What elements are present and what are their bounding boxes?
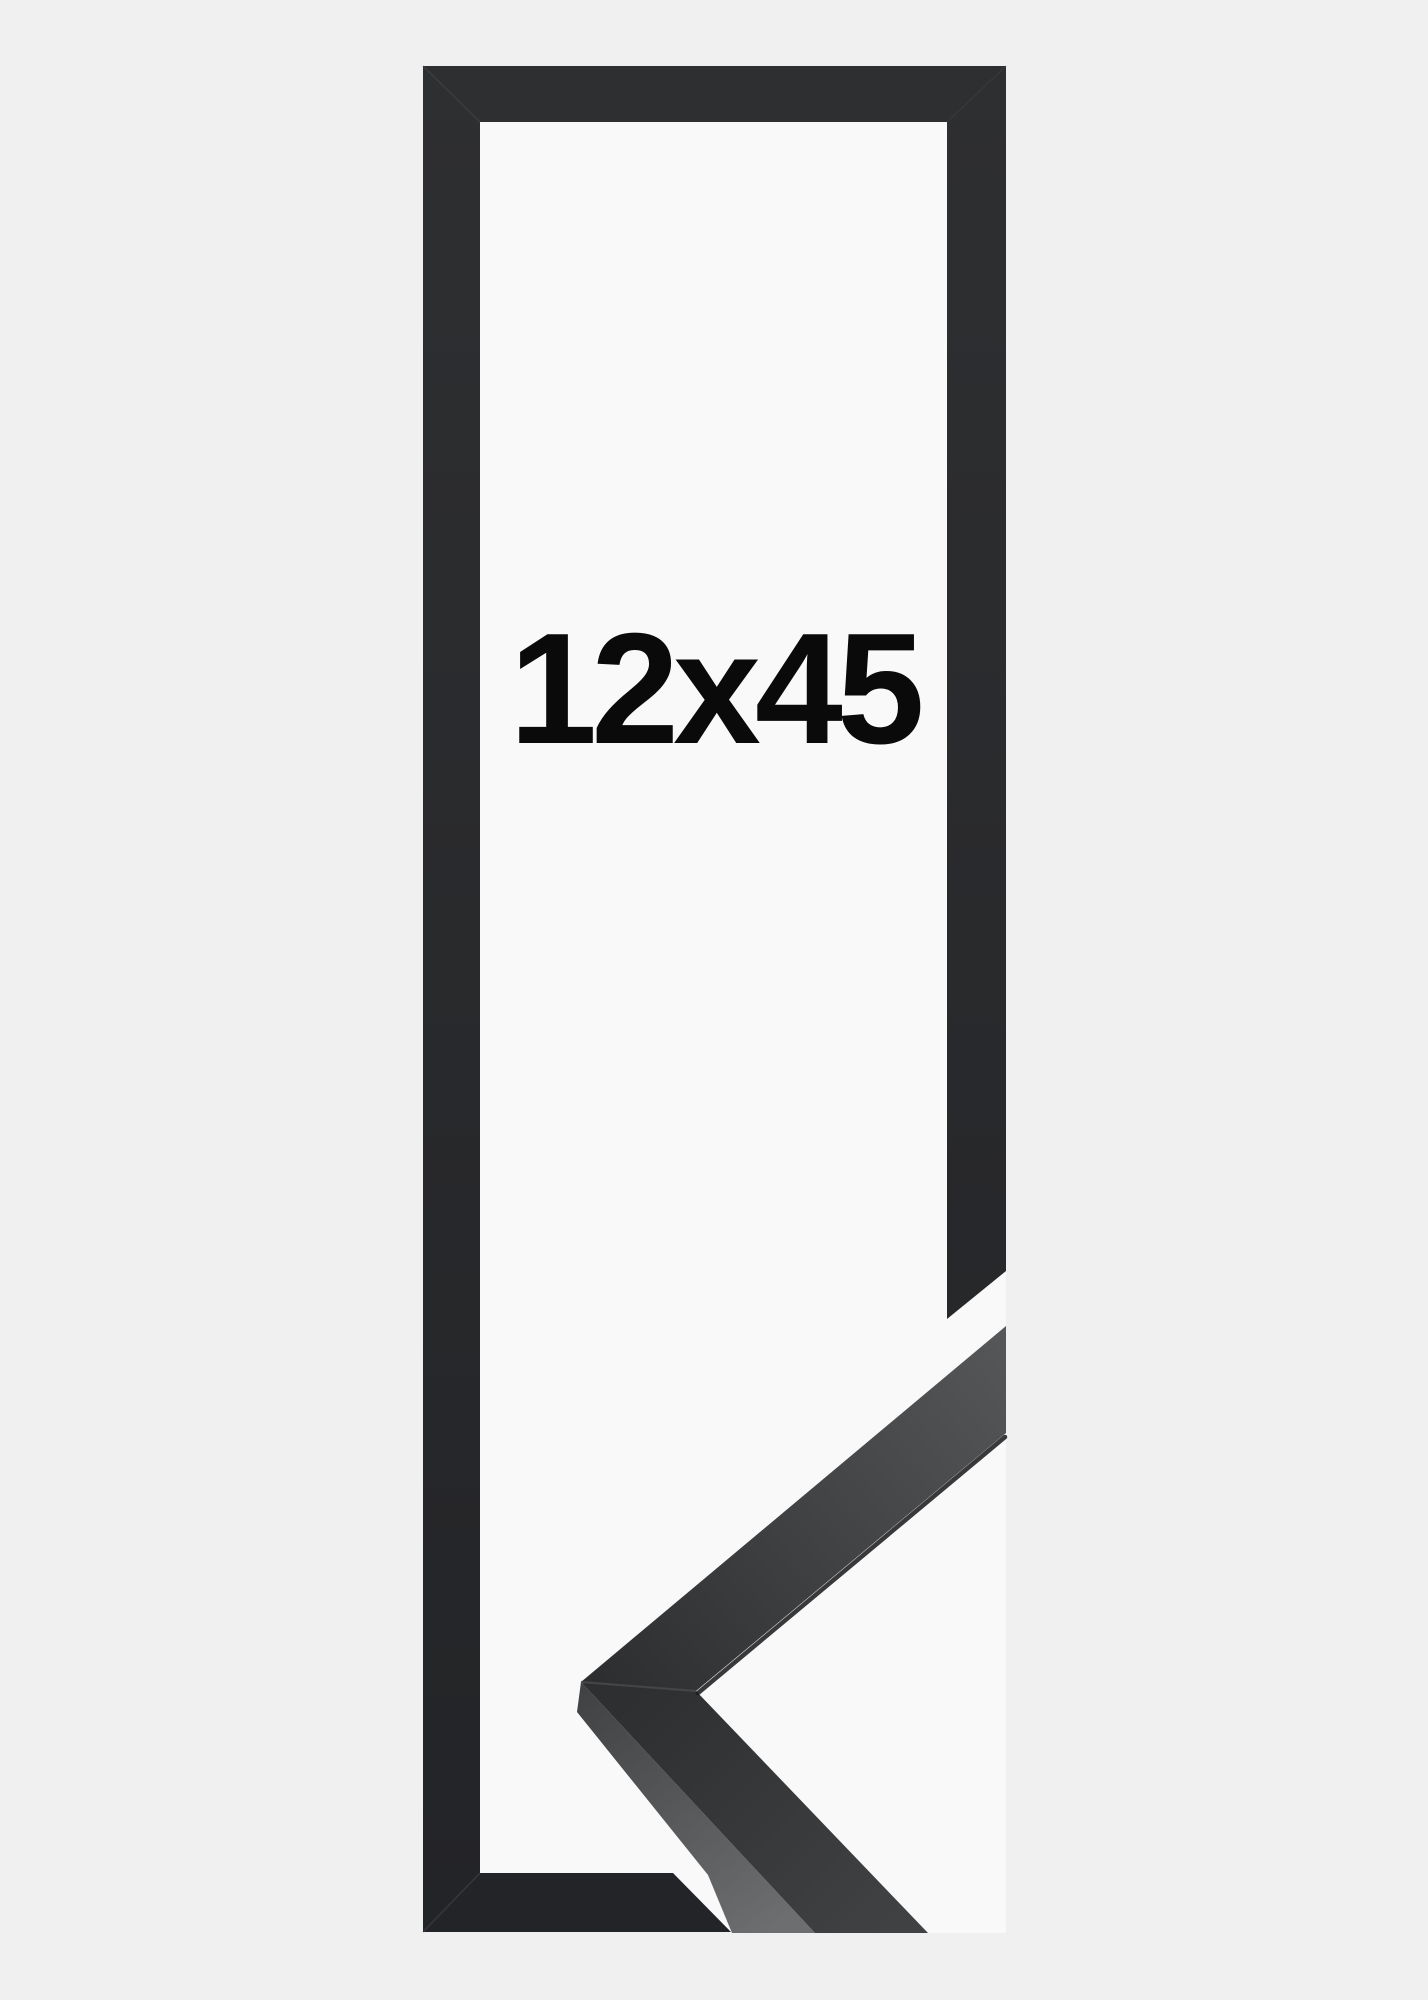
product-photo: 12x45	[0, 0, 1428, 2000]
frame-product-image: 12x45	[0, 0, 1428, 2000]
frame-window-backing	[480, 122, 1006, 1933]
size-label: 12x45	[509, 601, 920, 777]
